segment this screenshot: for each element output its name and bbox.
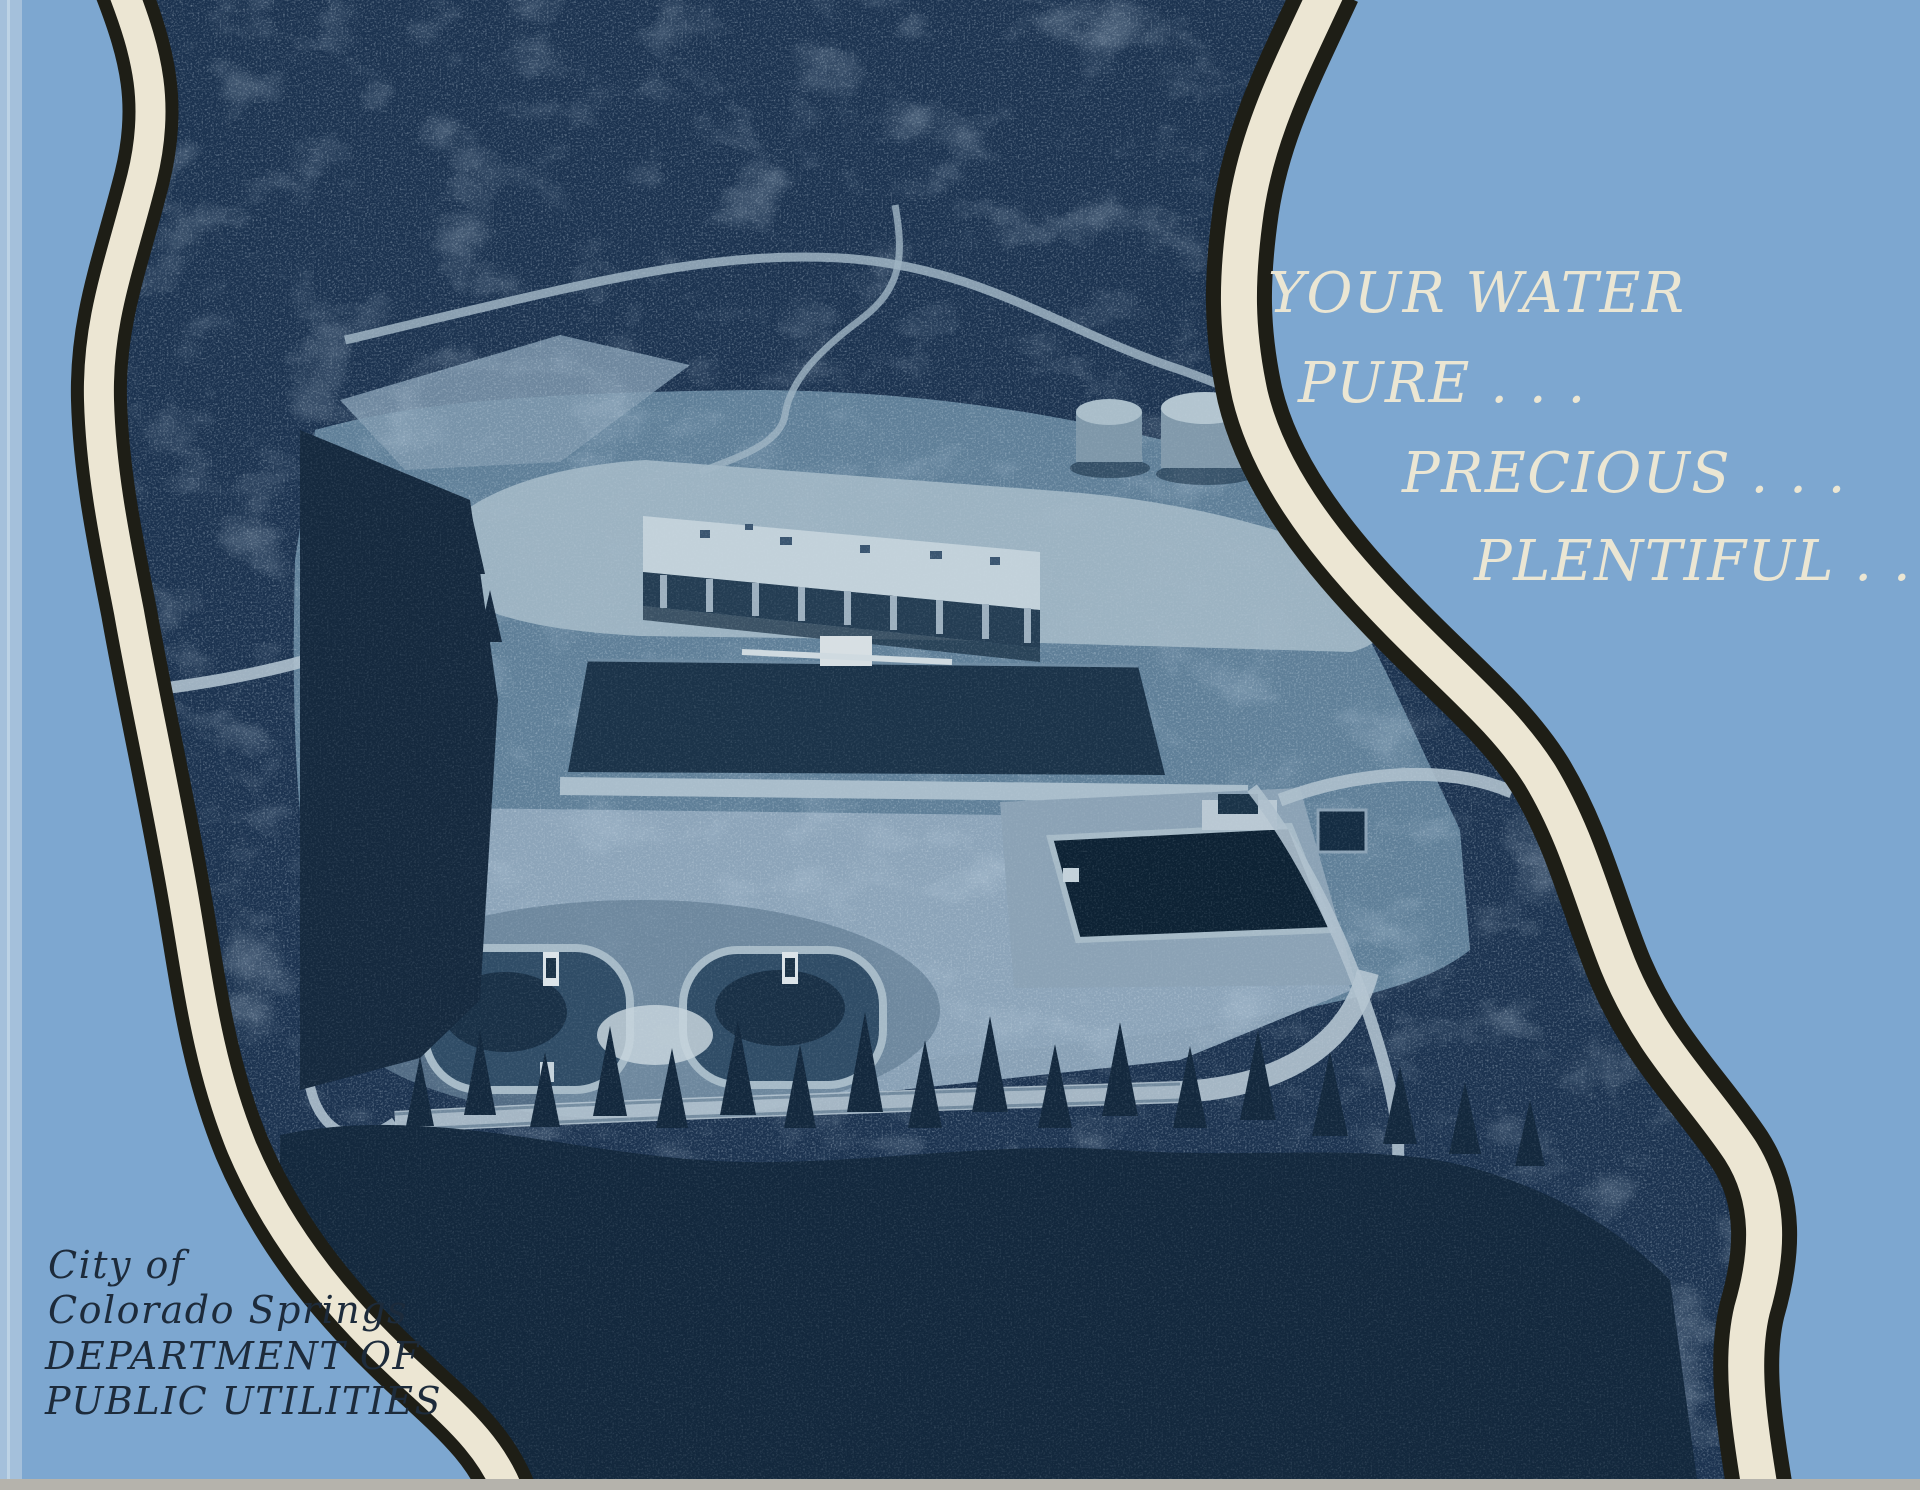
publisher-line-3: DEPARTMENT OF — [45, 1337, 420, 1375]
tagline-line-2: PURE . . . — [1298, 356, 1587, 412]
brochure-cover: Aerial photograph (blue duotone) of a hi… — [0, 0, 1920, 1490]
publisher-line-2: Colorado Springs — [48, 1291, 408, 1329]
spine-highlight — [7, 0, 10, 1490]
tagline-line-4: PLENTIFUL . . . — [1474, 534, 1920, 590]
bottom-page-edge — [0, 1479, 1920, 1490]
tagline-line-3: PRECIOUS . . . — [1402, 446, 1847, 502]
spine-edge — [0, 0, 22, 1490]
publisher-line-1: City of — [48, 1246, 186, 1284]
tagline-line-1: YOUR WATER — [1268, 266, 1686, 322]
publisher-line-4: PUBLIC UTILITIES — [45, 1382, 442, 1420]
cover-artwork: Aerial photograph (blue duotone) of a hi… — [0, 0, 1920, 1490]
